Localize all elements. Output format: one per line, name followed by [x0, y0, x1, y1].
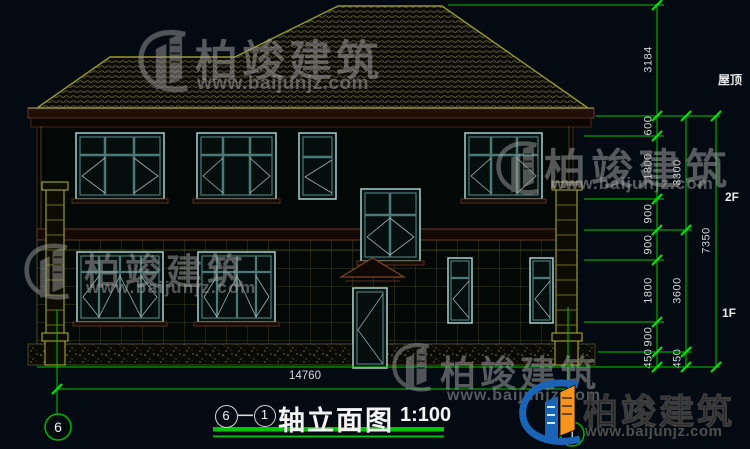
- watermark-url: www.baijunjz.com: [86, 278, 257, 298]
- floor-band: [37, 229, 573, 240]
- watermark-url: www.baijunjz.com: [551, 174, 714, 194]
- dim-14760: 14760: [275, 370, 335, 382]
- title-dash: [238, 415, 253, 417]
- company-logo-url: www.baijunjz.com: [585, 423, 722, 440]
- title-end-number: 1: [255, 408, 274, 422]
- title-start-number: 6: [216, 408, 236, 423]
- window-2f-left: [72, 133, 168, 203]
- drawing-scale: 1:100: [400, 404, 451, 427]
- window-2f-second: [193, 133, 280, 203]
- watermark-url: www.baijunjz.com: [197, 73, 369, 95]
- window-1f-narrow-right: [530, 258, 553, 323]
- cad-elevation-screenshot: 3184 600 1800 900 900 1800 900 450 3300 …: [0, 0, 750, 449]
- eave-fascia: [28, 108, 594, 127]
- drawing-title: 轴立面图: [278, 399, 394, 438]
- window-1f-narrow-left: [448, 258, 472, 323]
- right-pillar: [552, 182, 582, 365]
- window-2f-narrow: [299, 133, 336, 199]
- window-stairwell-center: [357, 189, 424, 265]
- entry-door: [353, 288, 387, 368]
- axis-number-left: 6: [49, 419, 67, 435]
